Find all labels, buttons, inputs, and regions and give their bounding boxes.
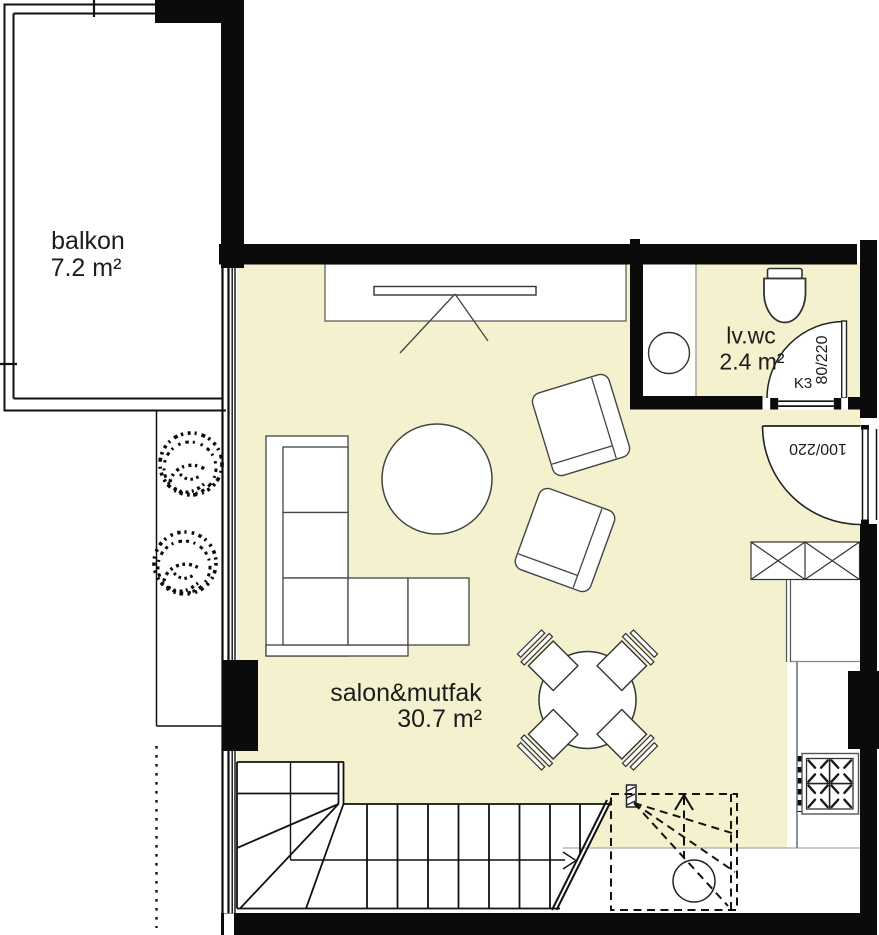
svg-text:100/220: 100/220: [789, 440, 847, 457]
svg-text:K3: K3: [794, 375, 812, 392]
svg-text:balkon: balkon: [51, 227, 125, 255]
svg-text:30.7 m²: 30.7 m²: [397, 705, 482, 733]
svg-text:80/220: 80/220: [814, 335, 831, 384]
svg-text:7.2 m²: 7.2 m²: [51, 254, 122, 282]
svg-text:2.4 m²: 2.4 m²: [719, 349, 785, 375]
svg-text:salon&mutfak: salon&mutfak: [330, 679, 482, 707]
svg-text:lv.wc: lv.wc: [726, 323, 775, 349]
